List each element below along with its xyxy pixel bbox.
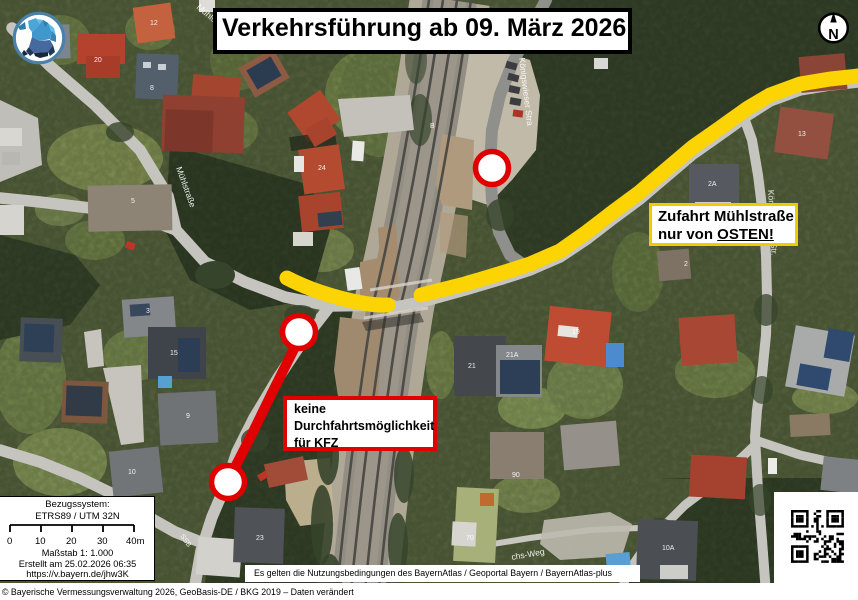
svg-text:10: 10	[128, 469, 136, 476]
svg-text:12: 12	[150, 20, 158, 27]
svg-text:70: 70	[466, 535, 474, 542]
svg-text:21: 21	[468, 363, 476, 370]
svg-text:24: 24	[318, 165, 326, 172]
svg-text:8: 8	[150, 85, 154, 92]
svg-text:2A: 2A	[708, 181, 717, 188]
svg-text:15: 15	[170, 350, 178, 357]
svg-text:19: 19	[572, 329, 580, 336]
svg-text:10A: 10A	[662, 545, 675, 552]
svg-text:23: 23	[256, 535, 264, 542]
svg-text:20: 20	[94, 57, 102, 64]
svg-text:21A: 21A	[506, 352, 519, 359]
svg-text:13: 13	[798, 131, 806, 138]
svg-text:90: 90	[512, 472, 520, 479]
svg-text:3: 3	[146, 308, 150, 315]
svg-text:N: N	[828, 27, 838, 43]
svg-text:B: B	[430, 123, 435, 130]
svg-text:9: 9	[186, 413, 190, 420]
svg-text:2: 2	[684, 261, 688, 268]
svg-text:5: 5	[131, 198, 135, 205]
